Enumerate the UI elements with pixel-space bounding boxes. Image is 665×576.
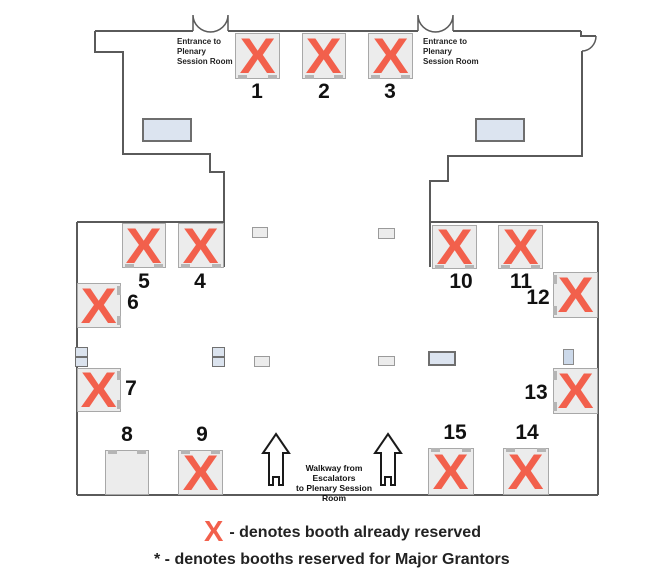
table-center — [428, 351, 456, 366]
legend-grantors-text: * - denotes booths reserved for Major Gr… — [154, 551, 510, 569]
booth-number-9: 9 — [182, 423, 222, 447]
booth-number-2: 2 — [304, 80, 344, 104]
entrance-label-line: Plenary — [177, 47, 233, 57]
table-top-left — [142, 118, 192, 142]
reserved-x-mark: X — [239, 31, 275, 81]
stand — [563, 349, 574, 365]
reserved-x-mark: X — [557, 366, 593, 416]
entrance-label-line: Entrance to — [177, 37, 233, 47]
double-door-right — [418, 15, 453, 32]
entrance-label-line: Session Room — [177, 57, 233, 67]
utility-stack-cell — [75, 347, 88, 357]
booth-number-13: 13 — [516, 381, 556, 405]
utility-stack — [75, 347, 88, 367]
booth-number-10: 10 — [441, 270, 481, 294]
utility-stack-cell — [75, 357, 88, 367]
reserved-x-mark: X — [183, 221, 219, 271]
reserved-x-mark: X — [182, 448, 218, 498]
booth-13: X — [553, 368, 598, 414]
booth-4: X — [178, 223, 224, 268]
booth-number-3: 3 — [370, 80, 410, 104]
legend-reserved-line: X - denotes booth already reserved — [204, 518, 481, 547]
booth-number-14: 14 — [507, 421, 547, 445]
exhibit-floor-plan: X1X2X3X4X5X6X78X9X10X11X12X13X14X15 Entr… — [0, 0, 665, 576]
floor-marker — [378, 356, 395, 366]
walkway-label-line: Walkway from Escalators — [284, 463, 384, 483]
booth-number-15: 15 — [435, 421, 475, 445]
booth-2: X — [302, 33, 346, 79]
booth-11: X — [498, 225, 543, 269]
booth-8 — [105, 450, 149, 495]
reserved-x-mark: X — [436, 222, 472, 272]
floor-marker — [254, 356, 270, 367]
booth-3: X — [368, 33, 413, 79]
double-door-left — [193, 15, 228, 32]
booth-1: X — [235, 33, 280, 79]
entrance-label-line: Entrance to — [423, 37, 479, 47]
booth-number-12: 12 — [518, 286, 558, 310]
walkway-label: Walkway from Escalators to Plenary Sessi… — [284, 463, 384, 503]
reserved-x-mark: X — [502, 222, 538, 272]
reserved-x-mark: X — [372, 31, 408, 81]
entrance-label-left: Entrance to Plenary Session Room — [177, 37, 233, 67]
booth-number-7: 7 — [111, 377, 151, 401]
table-top-right — [475, 118, 525, 142]
booth-number-6: 6 — [113, 291, 153, 315]
booth-15: X — [428, 448, 474, 495]
reserved-x-mark: X — [508, 447, 544, 497]
entrance-label-right: Entrance to Plenary Session Room — [423, 37, 479, 67]
walkway-label-line: to Plenary Session Room — [284, 483, 384, 503]
booth-14: X — [503, 448, 549, 495]
reserved-x-mark: X — [81, 281, 117, 331]
reserved-x-mark: X — [306, 31, 342, 81]
booth-12: X — [553, 272, 598, 318]
legend-reserved-text: - denotes booth already reserved — [229, 524, 481, 542]
booth-number-1: 1 — [237, 80, 277, 104]
booth-number-8: 8 — [107, 423, 147, 447]
reserved-x-symbol: X — [204, 518, 223, 547]
booth-10: X — [432, 225, 477, 269]
entrance-label-line: Plenary — [423, 47, 479, 57]
door-arc-top-right — [582, 36, 596, 51]
utility-stack-cell — [212, 347, 225, 357]
booth-number-4: 4 — [180, 270, 220, 294]
reserved-x-mark: X — [433, 447, 469, 497]
floor-marker — [252, 227, 268, 238]
reserved-x-mark: X — [557, 270, 593, 320]
utility-stack-cell — [212, 357, 225, 367]
booth-5: X — [122, 223, 166, 268]
booth-9: X — [178, 450, 223, 495]
entrance-label-line: Session Room — [423, 57, 479, 67]
reserved-x-mark: X — [126, 221, 162, 271]
floor-marker — [378, 228, 395, 239]
utility-stack — [212, 347, 225, 367]
